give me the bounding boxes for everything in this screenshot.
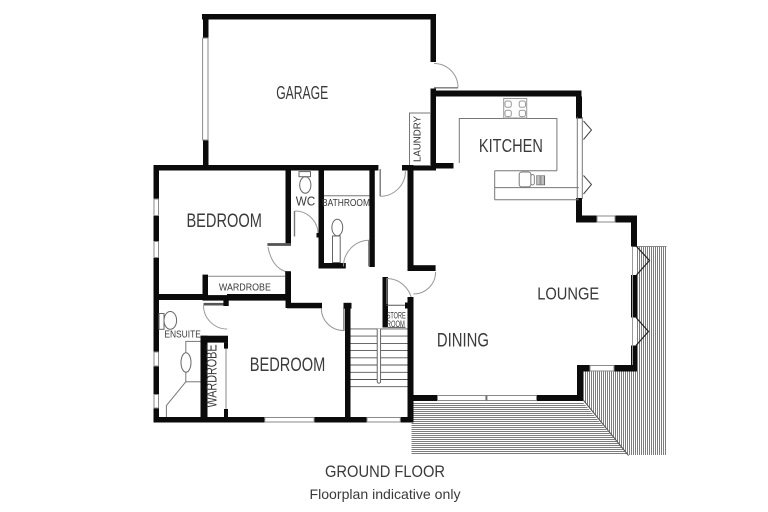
svg-text:ROOM: ROOM xyxy=(387,319,405,329)
svg-text:WARDROBE: WARDROBE xyxy=(204,345,221,408)
svg-text:Floorplan indicative only: Floorplan indicative only xyxy=(310,486,461,502)
svg-text:KITCHEN: KITCHEN xyxy=(479,135,543,156)
svg-text:GARAGE: GARAGE xyxy=(276,83,328,103)
svg-text:BATHROOM: BATHROOM xyxy=(322,198,370,209)
svg-text:LAUNDRY: LAUNDRY xyxy=(412,116,423,162)
svg-text:WC: WC xyxy=(296,193,316,208)
svg-text:LOUNGE: LOUNGE xyxy=(537,283,599,303)
svg-text:WARDROBE: WARDROBE xyxy=(219,283,271,294)
svg-text:BEDROOM: BEDROOM xyxy=(186,210,262,232)
svg-text:GROUND FLOOR: GROUND FLOOR xyxy=(325,462,445,481)
svg-text:ENSUITE: ENSUITE xyxy=(164,330,201,341)
svg-text:BEDROOM: BEDROOM xyxy=(250,354,326,376)
svg-text:DINING: DINING xyxy=(437,331,489,352)
